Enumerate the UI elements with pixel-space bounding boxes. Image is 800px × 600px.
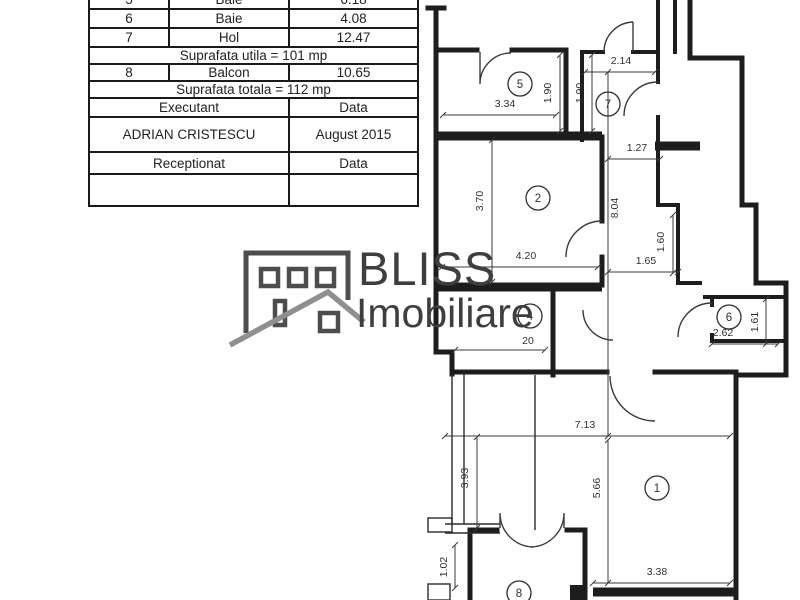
data-label: Data [289, 98, 418, 117]
dimension: 1.90 [574, 52, 595, 134]
dim-label: 3.38 [647, 566, 668, 578]
room-label-4: 4 [518, 304, 542, 328]
room-number: 8 [516, 588, 522, 600]
dimension: 2.14 [582, 55, 658, 75]
room-name: Baie [169, 0, 289, 9]
table-row-span: Suprafata totala = 112 mp [89, 81, 418, 98]
room-number: 6 [726, 312, 732, 324]
dimension: 3.38 [590, 566, 733, 586]
room-no: 8 [89, 64, 169, 81]
dim-label: 1.02 [438, 557, 450, 578]
dim-label: 7.13 [575, 419, 596, 431]
dim-label: 8.04 [609, 198, 621, 219]
room-number: 4 [527, 311, 534, 323]
dim-label: 1.27 [627, 142, 648, 154]
dim-label: 1.61 [749, 312, 761, 333]
dimension: 2.62 [709, 327, 781, 347]
table-row-empty [89, 174, 418, 206]
dimension: 4.20 [439, 250, 601, 270]
room-labels: 1245678 [507, 72, 741, 600]
table-row: ADRIAN CRISTESCU August 2015 [89, 117, 418, 152]
table-row: 5 Baie 6.18 [89, 0, 418, 9]
room-area: 6.18 [289, 0, 418, 9]
dimension: 1.90 [542, 52, 563, 134]
table-row: 7 Hol 12.47 [89, 28, 418, 47]
table-row: Executant Data [89, 98, 418, 117]
room-label-2: 2 [526, 186, 550, 210]
table-row: 6 Baie 4.08 [89, 9, 418, 28]
room-number: 5 [517, 79, 523, 91]
empty-cell [289, 174, 418, 206]
dim-label: 1.90 [542, 83, 554, 104]
room-label-8: 8 [507, 581, 531, 600]
dim-label: 20 [522, 335, 534, 347]
room-name: Baie [169, 9, 289, 28]
room-number: 1 [654, 483, 660, 495]
dimension: 5.66 [591, 437, 611, 586]
suprafata-utila: Suprafata utila = 101 mp [89, 47, 418, 64]
empty-cell [89, 174, 289, 206]
dim-label: 1.90 [574, 83, 586, 104]
date-value: August 2015 [289, 117, 418, 152]
dim-label: 3.34 [495, 98, 516, 110]
dimension: 3.70 [474, 137, 495, 285]
walls [428, 0, 786, 600]
dimension: 20 [452, 335, 548, 353]
room-number: 2 [535, 193, 541, 205]
dimension: 8.04 [605, 69, 621, 439]
dim-label: 4.20 [516, 250, 537, 262]
room-area: 4.08 [289, 9, 418, 28]
dimension: 1.65 [605, 255, 681, 275]
room-name: Balcon [169, 64, 289, 81]
measurements-table: 5 Baie 6.18 6 Baie 4.08 7 Hol 12.47 Supr… [88, 0, 419, 207]
room-label-5: 5 [508, 72, 532, 96]
room-no: 5 [89, 0, 169, 9]
room-label-6: 6 [717, 305, 741, 329]
room-name: Hol [169, 28, 289, 47]
room-no: 7 [89, 28, 169, 47]
executant-name: ADRIAN CRISTESCU [89, 117, 289, 152]
dimension: 1.27 [605, 142, 663, 162]
room-area: 12.47 [289, 28, 418, 47]
dimension: 3.93 [459, 434, 480, 531]
room-no: 6 [89, 9, 169, 28]
room-number: 7 [605, 99, 611, 111]
table-row: 8 Balcon 10.65 [89, 64, 418, 81]
executant-label: Executant [89, 98, 289, 117]
dim-label: 1.65 [636, 255, 657, 267]
dim-label: 5.66 [591, 478, 603, 499]
dimension: 7.13 [442, 419, 733, 439]
dim-label: 3.70 [474, 191, 486, 212]
room-area: 10.65 [289, 64, 418, 81]
dim-label: 1.60 [655, 232, 667, 253]
suprafata-totala: Suprafata totala = 112 mp [89, 81, 418, 98]
dim-label: 2.14 [611, 55, 632, 67]
dim-label: 3.93 [459, 468, 471, 489]
table-row: Receptionat Data [89, 152, 418, 174]
dimension: 1.60 [655, 212, 676, 276]
room-label-1: 1 [645, 476, 669, 500]
table-row-span: Suprafata utila = 101 mp [89, 47, 418, 64]
screenshot-stage: 3.341.901.902.141.273.704.208.041.651.60… [0, 0, 800, 600]
receptionat-label: Receptionat [89, 152, 289, 174]
data-label: Data [289, 152, 418, 174]
